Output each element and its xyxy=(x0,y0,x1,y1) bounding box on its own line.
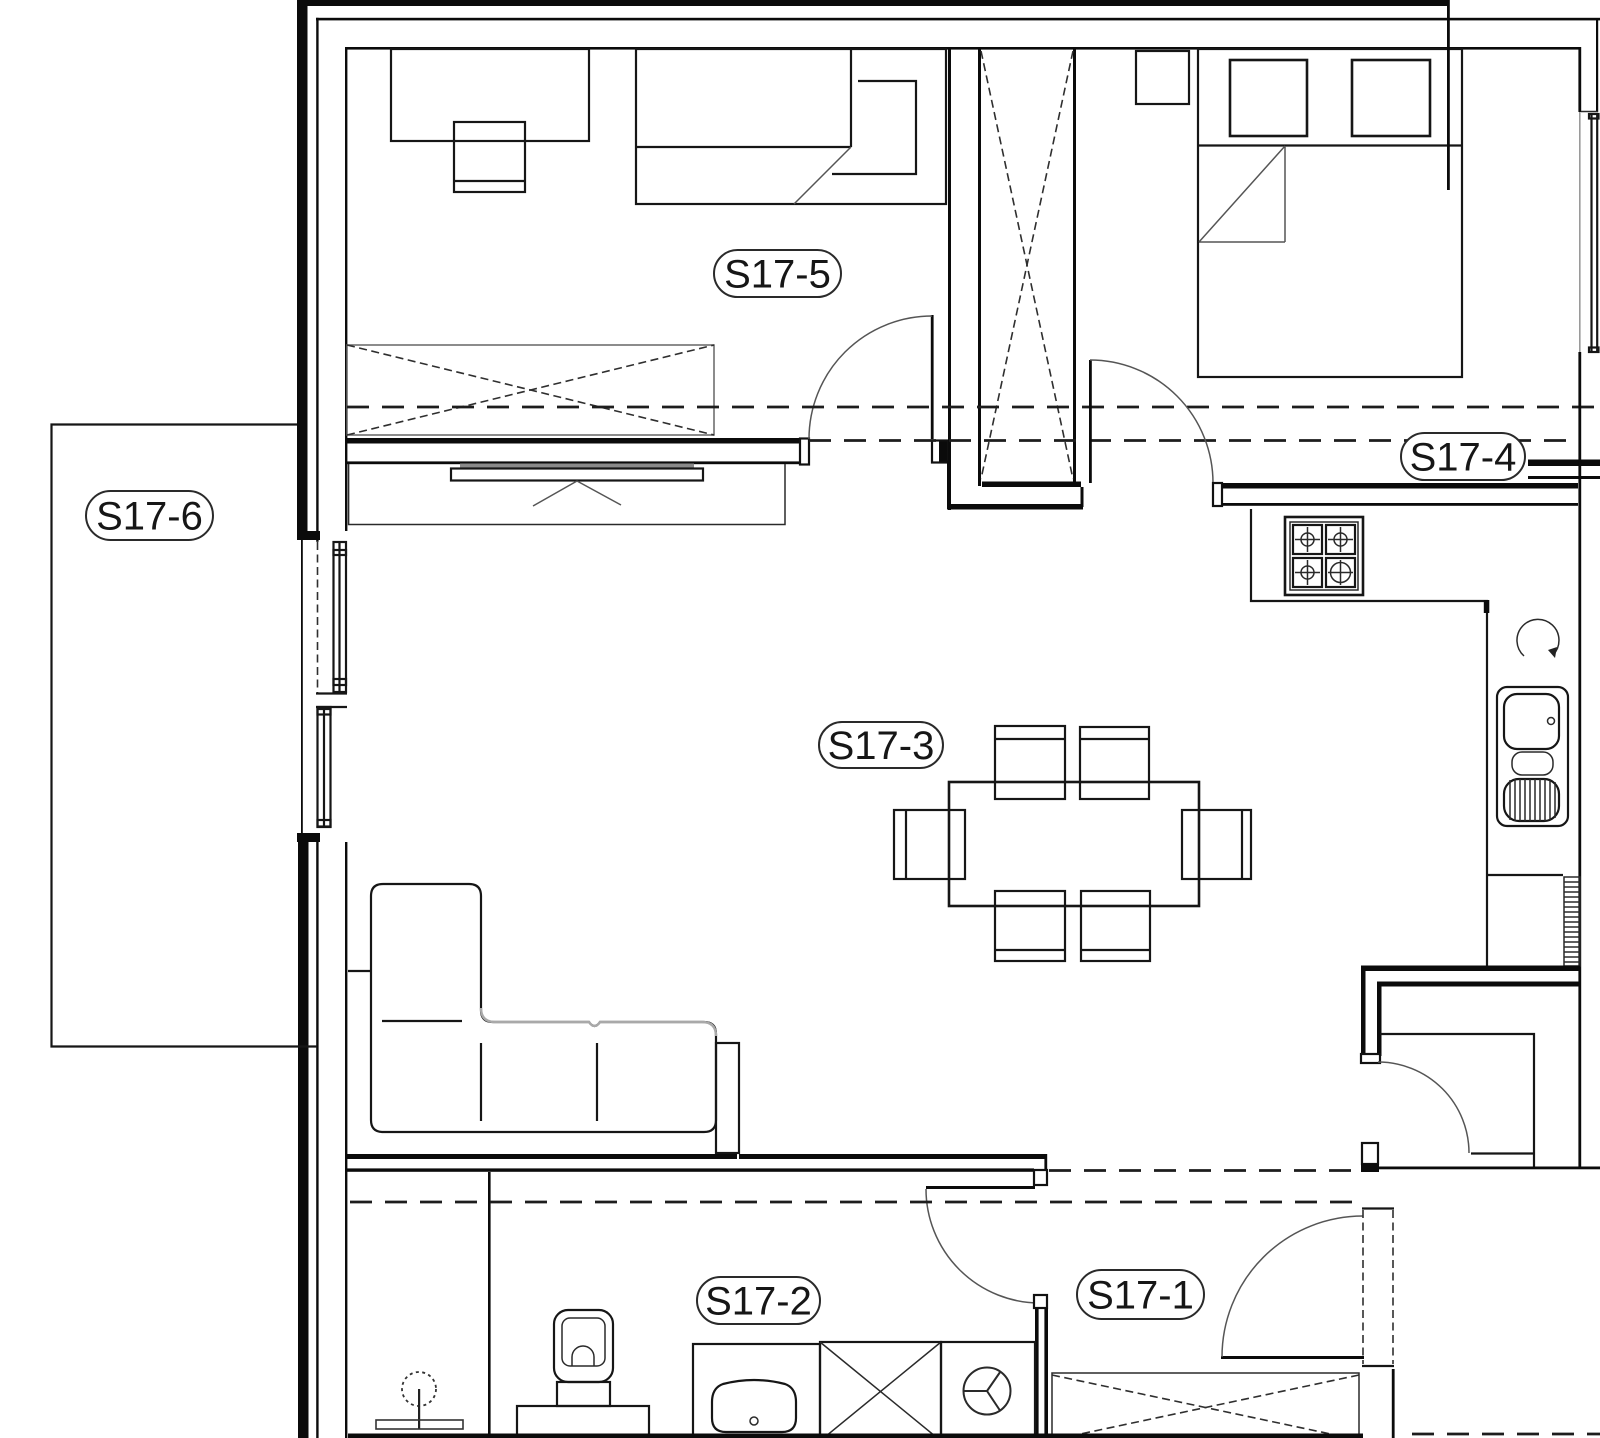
svg-text:S17-3: S17-3 xyxy=(828,724,935,768)
svg-text:S17-1: S17-1 xyxy=(1087,1274,1194,1318)
svg-text:S17-5: S17-5 xyxy=(724,253,831,297)
svg-text:S17-2: S17-2 xyxy=(705,1280,812,1324)
svg-text:S17-4: S17-4 xyxy=(1410,436,1517,480)
svg-text:S17-6: S17-6 xyxy=(96,495,203,539)
